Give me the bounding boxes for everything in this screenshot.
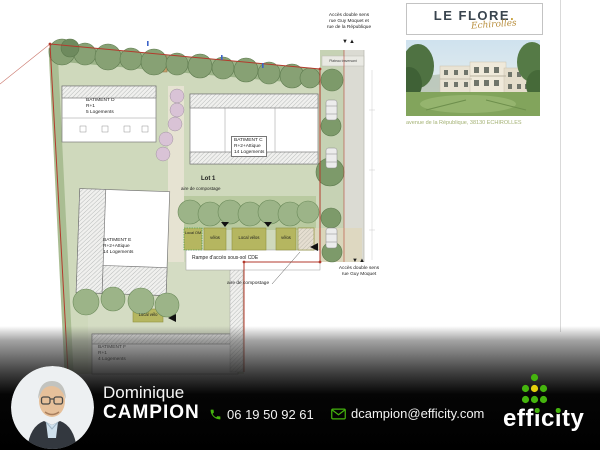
phone-icon <box>209 408 222 421</box>
agent-last-name: CAMPION <box>103 402 200 424</box>
local-velo-label: Local vélo <box>131 312 165 317</box>
local-velos-label: Local vélos <box>230 235 268 240</box>
access-arrows-east-icon: ▼▲ <box>316 258 402 265</box>
agent-email-address: dcampion@efficity.com <box>351 406 484 421</box>
compost-label-1: aire de compostage <box>181 186 221 191</box>
brand-box: LE FLORE. Echirolles <box>406 3 543 35</box>
building-render-photo <box>406 40 540 116</box>
building-E-label: BATIMENT ER+2+Attique14 Logements <box>103 238 133 255</box>
page-divider <box>560 0 561 332</box>
lot-label: Lot 1 <box>201 176 215 183</box>
flyer-page: Accès double sens rue Guy Moquet et rue … <box>0 0 600 450</box>
velos-label-2: vélos <box>274 235 298 240</box>
access-label-north: Accès double sens rue Guy Moquet et rue … <box>303 13 395 30</box>
local-om-label: Local OM <box>183 231 203 236</box>
agent-avatar <box>11 366 94 449</box>
efficity-wordmark: efficity <box>503 405 584 433</box>
building-C-label: BATIMENT CR+2+Attique14 Logements <box>231 136 267 157</box>
agent-phone[interactable]: 06 19 50 92 61 <box>209 407 314 422</box>
email-icon <box>331 408 346 420</box>
residence-subtitle: Echirolles <box>470 18 516 31</box>
agent-first-name: Dominique <box>103 383 184 403</box>
agent-phone-number: 06 19 50 92 61 <box>227 407 314 422</box>
compost-label-2: aire de compostage <box>227 281 269 287</box>
building-D-label: BATIMENT DR+15 Logements <box>86 98 115 115</box>
ramp-label: Rampe d'accès sous-sol CDE <box>192 255 258 261</box>
plateau-label: Plateau traversant <box>320 59 366 63</box>
agent-email[interactable]: dcampion@efficity.com <box>331 406 484 421</box>
access-label-east: Accès double sens rue Guy Moquet <box>316 266 402 278</box>
site-plan: Accès double sens rue Guy Moquet et rue … <box>0 0 410 378</box>
property-address: avenue de la République, 38130 ECHIROLLE… <box>406 120 546 126</box>
access-arrows-north-icon: ▼▲ <box>303 39 395 46</box>
efficity-logo-icon <box>519 373 550 409</box>
velos-label-1: vélos <box>203 235 227 240</box>
